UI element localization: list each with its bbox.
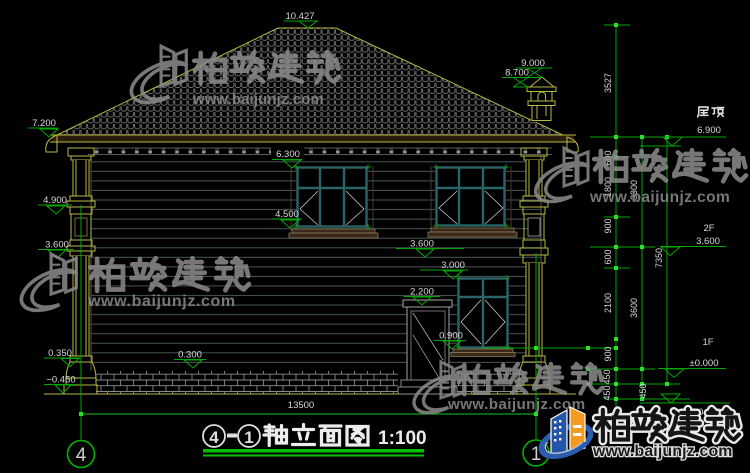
svg-text:0.300: 0.300 [178,350,202,361]
svg-text:900: 900 [603,218,613,233]
svg-text:900: 900 [603,346,613,361]
svg-text:13500: 13500 [288,400,314,411]
svg-text:3.000: 3.000 [441,260,465,271]
svg-text:±0.000: ±0.000 [690,358,719,369]
svg-text:4.500: 4.500 [275,209,299,220]
svg-text:www.baijunjz.com: www.baijunjz.com [87,293,236,310]
svg-text:8.700: 8.700 [505,68,529,79]
svg-text:2F: 2F [703,223,714,234]
svg-text:7350: 7350 [654,248,664,268]
svg-text:4.900: 4.900 [43,195,67,206]
svg-text:450: 450 [602,369,612,384]
svg-text:0.900: 0.900 [439,331,463,342]
svg-text:1:100: 1:100 [378,428,427,449]
svg-text:6.300: 6.300 [276,149,300,160]
svg-text:3.600: 3.600 [696,236,720,247]
svg-text:0.350: 0.350 [48,348,72,359]
svg-text:10.427: 10.427 [285,11,314,22]
svg-text:2.200: 2.200 [410,287,434,298]
svg-text:2100: 2100 [603,293,613,313]
svg-text:6.900: 6.900 [697,125,721,136]
svg-text:3600: 3600 [629,298,639,318]
svg-text:1: 1 [244,428,253,447]
svg-text:www.baijunjz.com: www.baijunjz.com [447,396,585,413]
svg-text:www.baijunjz.com: www.baijunjz.com [589,189,730,206]
svg-text:4: 4 [76,445,87,466]
svg-text:www.baijunjz.com: www.baijunjz.com [192,92,324,108]
svg-text:3.600: 3.600 [45,240,69,251]
svg-text:1F: 1F [702,337,713,348]
svg-text:450: 450 [638,383,648,398]
svg-text:3.600: 3.600 [410,239,434,250]
svg-text:7.200: 7.200 [32,118,56,129]
svg-text:4: 4 [209,428,219,447]
svg-text:www.baijunjz.com: www.baijunjz.com [592,443,733,460]
svg-text:−0.450: −0.450 [46,375,75,386]
svg-text:3527: 3527 [603,73,613,93]
svg-text:600: 600 [603,249,613,264]
